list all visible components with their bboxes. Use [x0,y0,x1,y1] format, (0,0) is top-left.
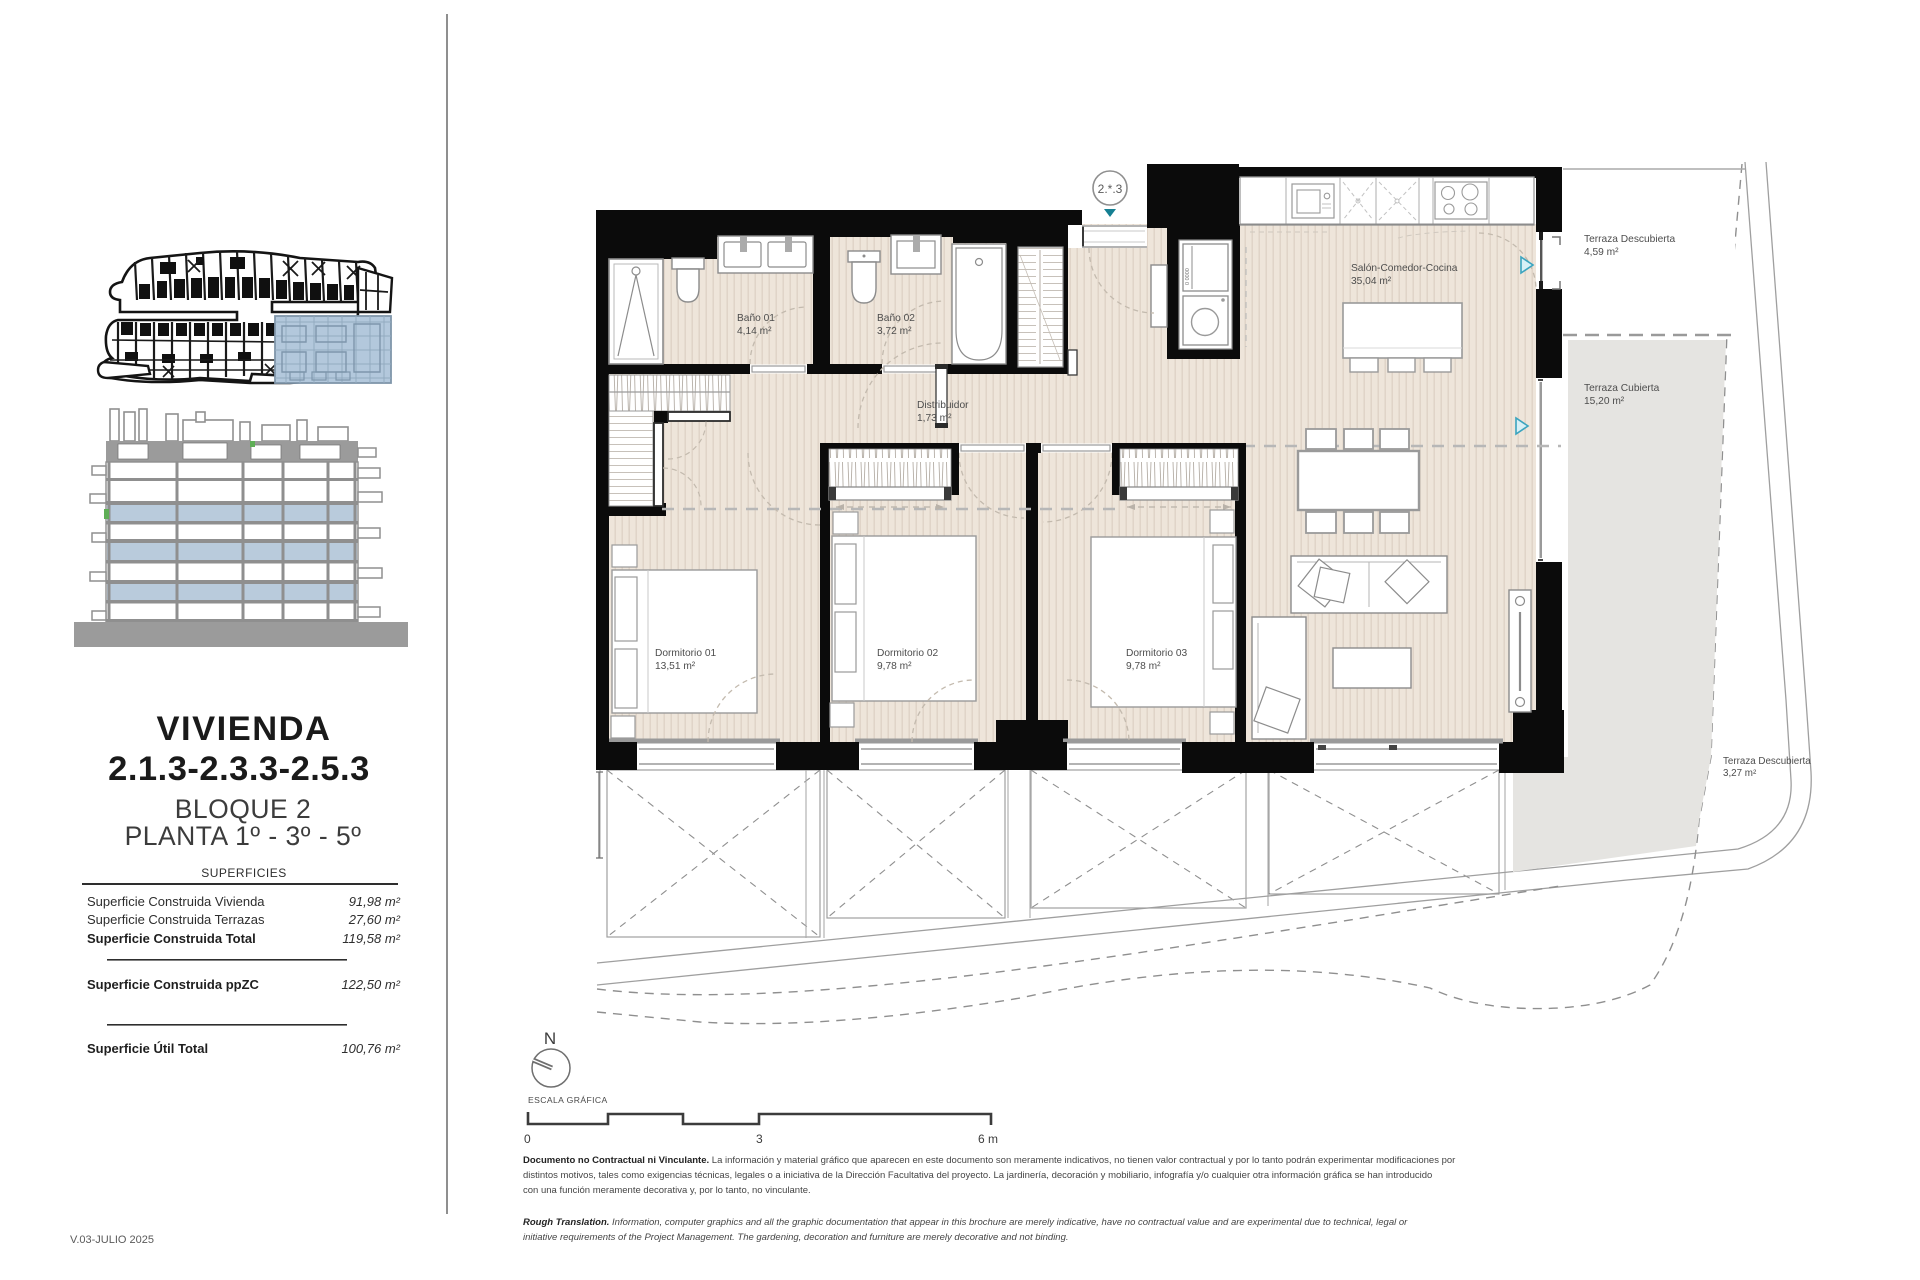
svg-text:Superficie Útil Total: Superficie Útil Total [87,1041,208,1056]
svg-text:4,59 m²: 4,59 m² [1584,247,1619,258]
svg-text:35,04 m²: 35,04 m² [1351,276,1392,287]
svg-text:Dormitorio 01: Dormitorio 01 [655,648,716,659]
svg-text:Dormitorio 03: Dormitorio 03 [1126,648,1187,659]
svg-text:N: N [544,1029,556,1048]
svg-text:con una función meramente deco: con una función meramente decorativa y, … [523,1185,811,1196]
svg-text:91,98 m²: 91,98 m² [349,894,401,909]
svg-text:SUPERFICIES: SUPERFICIES [201,866,287,880]
svg-text:Terraza Descubierta: Terraza Descubierta [1723,756,1811,767]
svg-text:Superficie Construida Total: Superficie Construida Total [87,931,256,946]
svg-text:Baño 01: Baño 01 [737,313,775,324]
svg-text:Documento no Contractual ni Vi: Documento no Contractual ni Vinculante. … [523,1155,1455,1166]
svg-text:Terraza Descubierta: Terraza Descubierta [1584,234,1675,245]
svg-text:Superficie Construida Vivienda: Superficie Construida Vivienda [87,894,265,909]
svg-text:0 0000: 0 0000 [1185,268,1191,285]
svg-text:122,50 m²: 122,50 m² [341,977,400,992]
svg-text:ESCALA GRÁFICA: ESCALA GRÁFICA [528,1095,608,1105]
svg-text:15,20 m²: 15,20 m² [1584,396,1625,407]
svg-text:Salón-Comedor-Cocina: Salón-Comedor-Cocina [1351,263,1458,274]
svg-text:2.1.3-2.3.3-2.5.3: 2.1.3-2.3.3-2.5.3 [108,750,370,788]
svg-text:1,73 m²: 1,73 m² [917,413,952,424]
svg-text:9,78 m²: 9,78 m² [877,661,912,672]
svg-text:Baño 02: Baño 02 [877,313,915,324]
svg-text:27,60 m²: 27,60 m² [348,912,401,927]
svg-text:Rough Translation. Information: Rough Translation. Information, computer… [523,1217,1408,1228]
svg-text:0: 0 [524,1132,531,1146]
svg-text:6 m: 6 m [978,1132,998,1146]
svg-text:119,58 m²: 119,58 m² [342,931,400,946]
svg-text:9,78 m²: 9,78 m² [1126,661,1161,672]
svg-text:Distribuidor: Distribuidor [917,400,969,411]
svg-text:BLOQUE 2: BLOQUE 2 [175,794,312,824]
svg-text:Terraza Cubierta: Terraza Cubierta [1584,383,1660,394]
svg-text:PLANTA 1º - 3º - 5º: PLANTA 1º - 3º - 5º [125,821,362,851]
svg-text:Dormitorio 02: Dormitorio 02 [877,648,938,659]
svg-text:3: 3 [756,1132,763,1146]
svg-text:13,51 m²: 13,51 m² [655,661,696,672]
svg-text:3,27 m²: 3,27 m² [1723,768,1757,779]
svg-text:4,14 m²: 4,14 m² [737,326,772,337]
svg-text:Superficie Construida Terrazas: Superficie Construida Terrazas [87,912,265,927]
svg-text:Superficie Construida ppZC: Superficie Construida ppZC [87,977,260,992]
svg-text:100,76 m²: 100,76 m² [341,1041,400,1056]
svg-text:2.*.3: 2.*.3 [1098,182,1123,196]
svg-text:3,72 m²: 3,72 m² [877,326,912,337]
svg-text:distintos motivos, tales como: distintos motivos, tales como exigencias… [523,1170,1432,1181]
svg-text:V.03-JULIO 2025: V.03-JULIO 2025 [70,1234,154,1246]
svg-text:VIVIENDA: VIVIENDA [157,710,332,748]
svg-text:initiative requirements of the: initiative requirements of the Project M… [523,1232,1069,1243]
